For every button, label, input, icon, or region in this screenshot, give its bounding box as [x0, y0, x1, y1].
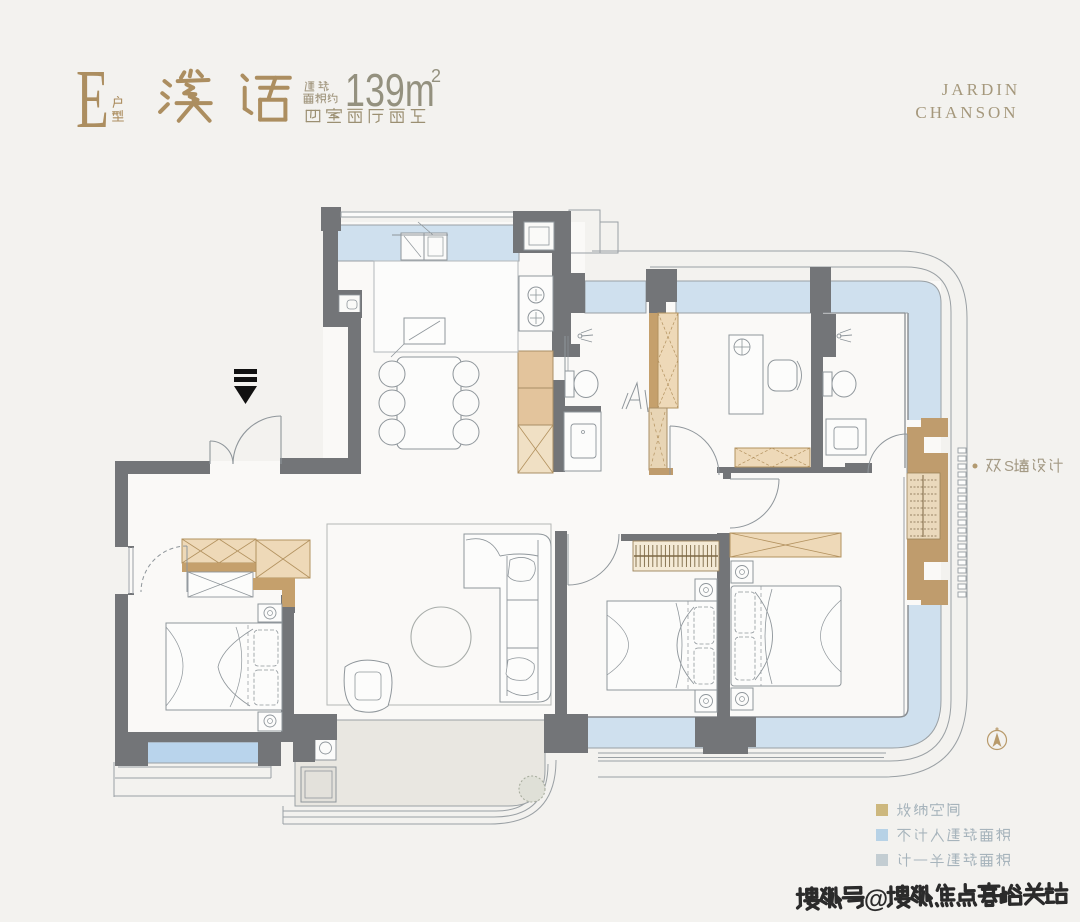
- svg-text:CHANSON: CHANSON: [915, 103, 1018, 122]
- svg-text:S: S: [1004, 458, 1014, 475]
- svg-text:139m: 139m: [345, 65, 435, 116]
- svg-text:JARDIN: JARDIN: [942, 80, 1020, 99]
- svg-text:2: 2: [431, 66, 441, 86]
- svg-text:E: E: [76, 53, 109, 146]
- svg-text:@: @: [864, 885, 889, 914]
